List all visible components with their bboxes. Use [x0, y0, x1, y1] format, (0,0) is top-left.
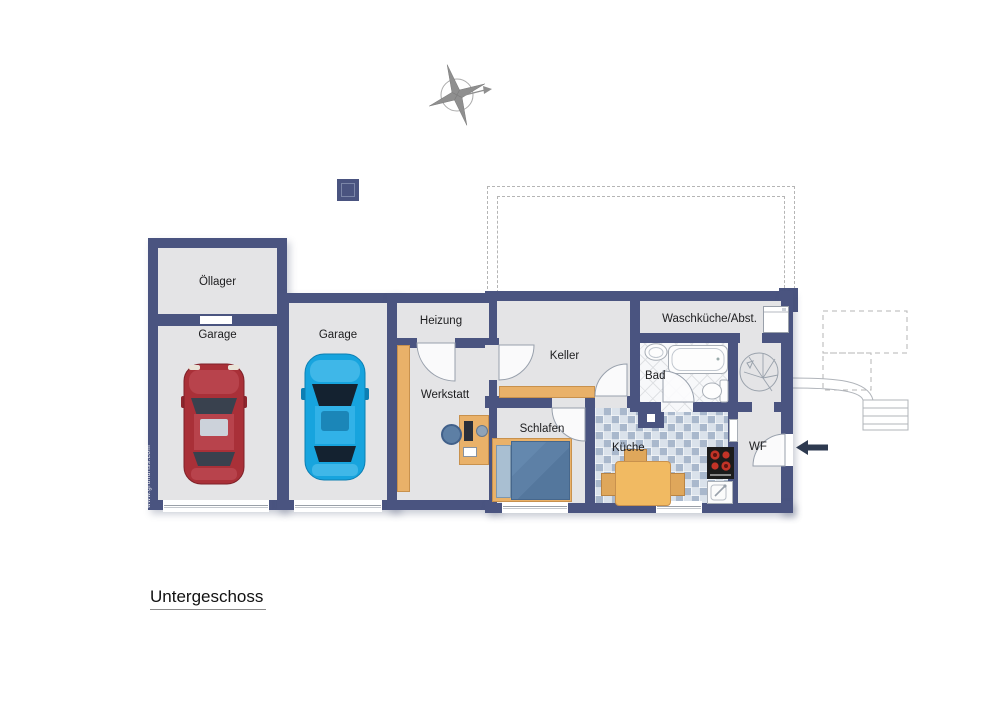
window-schlafen [502, 501, 568, 513]
radiator [729, 419, 738, 442]
chair-right [670, 473, 685, 496]
desk-chair [441, 424, 462, 445]
opening-oellager-door [200, 316, 232, 324]
garage-door-right [294, 500, 382, 512]
wall-stairs-wf-b [774, 402, 781, 412]
bed-lounger [496, 445, 511, 498]
bathroom-sink-icon [644, 343, 669, 362]
stove-icon [707, 447, 734, 479]
garage-door-left [163, 500, 269, 512]
room-label-oellager: Öllager [158, 276, 277, 288]
dining-table [615, 461, 671, 506]
wall-bad-bottom-b [693, 402, 738, 412]
opening-keller-kueche [595, 396, 627, 408]
room-label-keller: Keller [499, 350, 630, 362]
kueche-pillar-flue [647, 414, 655, 422]
opening-stairs-wf [752, 402, 774, 412]
wall-keller-wasch [630, 300, 640, 408]
desk-label-chip [463, 447, 477, 457]
room-label-garage-right: Garage [289, 329, 387, 341]
floorplan: Öllager Garage Garage Heizung Werkstatt … [0, 0, 1000, 707]
opening-bad-door [661, 402, 693, 412]
kitchen-sink-icon [707, 481, 733, 504]
red-car [181, 362, 247, 486]
room-label-wf: WF [738, 441, 778, 453]
floor-werkstatt-heizung [397, 303, 489, 500]
opening-entrance-door [781, 434, 793, 466]
room-label-werkstatt: Werkstatt [399, 389, 491, 401]
room-label-bad: Bad [645, 370, 665, 382]
room-label-heizung: Heizung [397, 315, 485, 327]
opening-wasch-stairs [740, 333, 762, 343]
wall-stairs-wf-a [738, 402, 752, 412]
entrance-arrow-icon [796, 440, 828, 455]
page-title: Untergeschoss [150, 587, 266, 610]
terrace-dashed-outline-inner [497, 196, 785, 293]
keller-shelf [499, 386, 595, 398]
wall-bad-stairs [728, 333, 738, 412]
bed-mattress [511, 441, 570, 500]
desk-monitor [464, 421, 473, 441]
spiral-staircase-icon [739, 343, 779, 401]
blue-car [301, 352, 369, 482]
wall-keller-kueche-stub [627, 396, 640, 408]
bathtub-icon [668, 345, 728, 374]
toilet-icon [701, 379, 729, 403]
workbench [397, 345, 410, 492]
watermark: www.grundriss.com [145, 430, 156, 508]
room-label-schlafen: Schlafen [499, 423, 585, 435]
room-label-waschkueche: Waschküche/Abst. [640, 313, 779, 325]
exterior-stairs-icon [790, 300, 915, 435]
chimney-symbol [337, 179, 359, 201]
room-label-kueche: Küche [612, 442, 645, 454]
wall-schlafen-kueche [585, 396, 595, 503]
room-label-garage-left: Garage [158, 329, 277, 341]
compass-rose-icon [421, 59, 493, 131]
chair-left [601, 473, 616, 496]
chimney-inner [341, 183, 355, 197]
opening-heizung [417, 338, 455, 348]
desk-object [476, 425, 488, 437]
opening-werkstatt-keller [485, 345, 499, 380]
